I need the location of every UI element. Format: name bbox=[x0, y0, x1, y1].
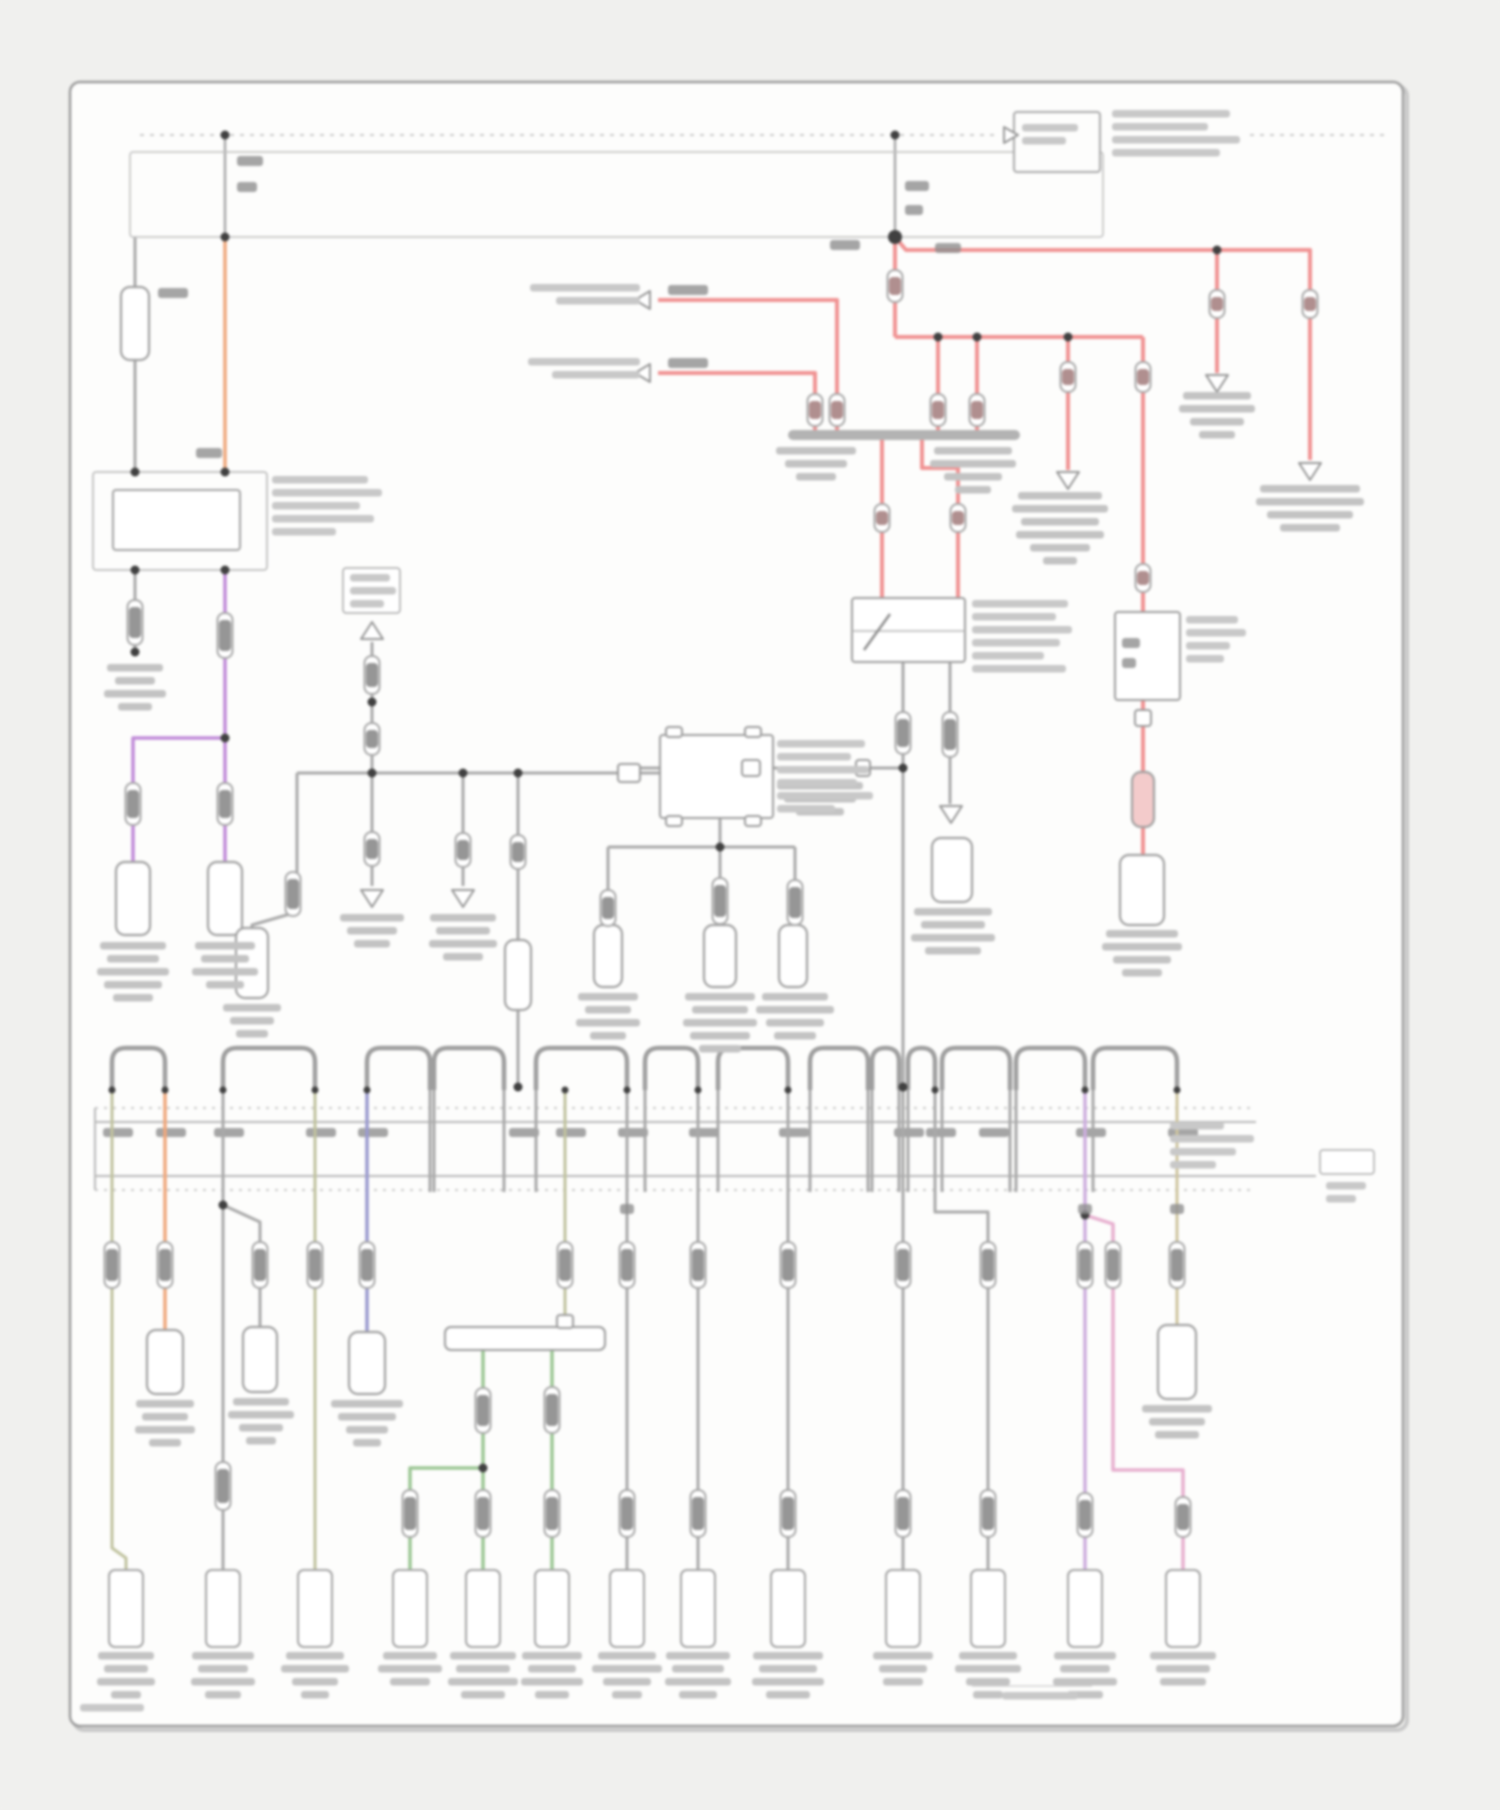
junction-dot bbox=[479, 1464, 488, 1473]
fuse-label-smudge bbox=[1079, 1500, 1091, 1530]
ground-label-line bbox=[340, 914, 404, 922]
ground-label-line bbox=[1267, 511, 1353, 519]
band-fuse-label-smudge bbox=[103, 1128, 133, 1137]
fuse-label-smudge bbox=[219, 790, 231, 818]
fuse-label-smudge bbox=[1211, 297, 1223, 311]
bottom-connector bbox=[1068, 1570, 1102, 1647]
band-fuse-label-smudge bbox=[926, 1128, 956, 1137]
ground-label-line bbox=[429, 940, 497, 948]
label-text-line bbox=[1326, 1182, 1366, 1190]
label-text-line bbox=[272, 476, 368, 484]
ground-label-line bbox=[752, 1678, 824, 1686]
fuse-label-smudge bbox=[457, 840, 469, 860]
fuse-label-smudge bbox=[546, 1497, 558, 1530]
ground-label-line bbox=[353, 1439, 381, 1447]
junction-dot bbox=[888, 230, 902, 244]
label-text-line bbox=[972, 665, 1066, 673]
ground-label-line bbox=[443, 953, 483, 961]
label-text-line bbox=[1186, 629, 1246, 637]
band-fuse-label-smudge bbox=[556, 1128, 586, 1137]
ground-label-line bbox=[107, 664, 163, 672]
ground-label-line bbox=[1113, 956, 1171, 964]
ground-label-line bbox=[934, 447, 1012, 455]
fuse-label-smudge bbox=[219, 620, 231, 651]
label-text-line bbox=[350, 600, 384, 608]
label-text-line bbox=[528, 358, 640, 366]
ground-label-line bbox=[97, 1678, 155, 1686]
wire-id-smudge bbox=[935, 243, 961, 253]
band-fuse-label-smudge bbox=[1076, 1128, 1106, 1137]
ground-label-line bbox=[338, 1413, 396, 1421]
ground-label-line bbox=[796, 473, 836, 481]
band-fuse-label-smudge bbox=[306, 1128, 336, 1137]
ground-label-line bbox=[1280, 524, 1340, 532]
ground-label-line bbox=[142, 1413, 188, 1421]
connector-capsule bbox=[932, 838, 972, 902]
junction-dot bbox=[221, 566, 230, 575]
label-text-line bbox=[1112, 123, 1208, 131]
band-fuse-label-smudge bbox=[509, 1128, 539, 1137]
wire-id-smudge bbox=[905, 181, 929, 191]
ground-label-line bbox=[959, 1652, 1017, 1660]
label-text-line bbox=[1170, 1135, 1254, 1143]
ground-label-line bbox=[230, 1017, 274, 1025]
ground-label-line bbox=[430, 914, 496, 922]
ground-label-line bbox=[955, 1665, 1021, 1673]
component-box-right bbox=[1115, 612, 1180, 700]
band-fuse-label-smudge bbox=[779, 1128, 809, 1137]
ground-label-line bbox=[192, 1652, 254, 1660]
fuse-label-smudge bbox=[477, 1497, 489, 1530]
power-bus-bar bbox=[788, 430, 1020, 440]
junction-dot bbox=[221, 131, 230, 140]
ground-label-line bbox=[436, 927, 490, 935]
ground-label-line bbox=[354, 940, 390, 948]
ground-label-line bbox=[1183, 392, 1251, 400]
ground-label-line bbox=[1016, 531, 1104, 539]
ground-label-line bbox=[198, 1665, 248, 1673]
ground-label-line bbox=[107, 955, 159, 963]
ground-label-line bbox=[118, 703, 152, 711]
label-text-line bbox=[777, 792, 873, 800]
label-text-line bbox=[1170, 1161, 1216, 1169]
fuse-label-smudge bbox=[559, 1249, 571, 1281]
ground-label-line bbox=[1199, 431, 1235, 439]
ground-label-line bbox=[111, 1691, 141, 1699]
label-text-line bbox=[1186, 655, 1224, 663]
ground-label-line bbox=[785, 460, 847, 468]
label-text-line bbox=[777, 779, 857, 787]
inline-connector bbox=[745, 727, 761, 737]
fuse-label-smudge bbox=[1171, 1249, 1183, 1281]
ground-label-line bbox=[766, 1019, 824, 1027]
ground-label-line bbox=[390, 1678, 430, 1686]
ground-label-line bbox=[966, 1678, 1010, 1686]
wire-id-smudge bbox=[1078, 1204, 1092, 1214]
connector-capsule bbox=[116, 862, 150, 935]
bottom-connector bbox=[1166, 1570, 1200, 1647]
ground-label-line bbox=[97, 968, 169, 976]
fuse-label-smudge bbox=[897, 719, 909, 747]
junction-dot bbox=[1213, 246, 1222, 255]
wire-id-smudge bbox=[196, 448, 222, 458]
junction-dot bbox=[131, 648, 140, 657]
ground-label-line bbox=[690, 1032, 750, 1040]
diagram-canvas bbox=[0, 0, 1500, 1810]
junction-dot bbox=[695, 1087, 702, 1094]
label-text-line bbox=[777, 805, 835, 813]
junction-dot bbox=[221, 468, 230, 477]
fuse-label-smudge bbox=[546, 1394, 558, 1426]
ground-label-line bbox=[598, 1652, 656, 1660]
label-text-line bbox=[777, 740, 865, 748]
ground-label-line bbox=[603, 1678, 651, 1686]
fuse-label-smudge bbox=[1137, 369, 1149, 385]
label-text-line bbox=[777, 766, 869, 774]
wire-id-smudge bbox=[158, 288, 188, 298]
inline-connector bbox=[1135, 710, 1151, 726]
junction-dot bbox=[891, 131, 900, 140]
ground-label-line bbox=[1053, 1678, 1117, 1686]
fuse-label-smudge bbox=[782, 1497, 794, 1530]
label-text-line bbox=[1326, 1195, 1356, 1203]
ground-label-line bbox=[672, 1665, 724, 1673]
power-distribution-wiring-diagram bbox=[0, 0, 1500, 1810]
ground-label-line bbox=[383, 1652, 437, 1660]
fuse-label-smudge bbox=[366, 730, 378, 748]
ground-label-line bbox=[448, 1678, 518, 1686]
ground-label-line bbox=[522, 1652, 582, 1660]
connector-capsule bbox=[349, 1332, 385, 1394]
fuse-label-smudge bbox=[952, 511, 964, 525]
page-border bbox=[70, 82, 1403, 1726]
fuse-label-smudge bbox=[982, 1497, 994, 1530]
junction-dot bbox=[162, 1087, 169, 1094]
fuse-label-smudge bbox=[692, 1497, 704, 1530]
module-box-left-inner bbox=[113, 490, 240, 550]
fuse-label-smudge bbox=[897, 1249, 909, 1281]
ground-label-line bbox=[585, 1006, 631, 1014]
ground-label-line bbox=[590, 1032, 626, 1040]
label-text-line bbox=[1186, 642, 1230, 650]
junction-dot bbox=[131, 566, 140, 575]
ground-label-line bbox=[1102, 943, 1182, 951]
ground-label-line bbox=[528, 1665, 576, 1673]
label-text-line bbox=[1170, 1148, 1236, 1156]
fuse-label-smudge bbox=[971, 401, 983, 419]
ground-label-line bbox=[873, 1652, 933, 1660]
ground-label-line bbox=[1260, 485, 1360, 493]
ground-label-line bbox=[104, 981, 162, 989]
ground-label-line bbox=[683, 1019, 757, 1027]
fuse-label-smudge bbox=[287, 879, 299, 909]
ground-label-line bbox=[228, 1411, 294, 1419]
label-text-line bbox=[272, 489, 382, 497]
ground-label-line bbox=[578, 993, 638, 1001]
ground-label-line bbox=[1021, 518, 1099, 526]
junction-dot bbox=[562, 1087, 569, 1094]
bottom-connector bbox=[393, 1570, 427, 1647]
label-text-line bbox=[972, 626, 1072, 634]
label-text-line bbox=[350, 587, 396, 595]
junction-dot bbox=[219, 1201, 228, 1210]
ground-label-line bbox=[104, 690, 166, 698]
label-text-line bbox=[972, 652, 1044, 660]
inline-connector bbox=[745, 816, 761, 826]
connector-capsule bbox=[208, 862, 242, 935]
wire-id-smudge bbox=[668, 285, 708, 295]
bottom-connector bbox=[681, 1570, 715, 1647]
junction-dot bbox=[624, 1087, 631, 1094]
ground-label-line bbox=[450, 1652, 516, 1660]
ground-label-line bbox=[331, 1400, 403, 1408]
ground-label-line bbox=[766, 1691, 810, 1699]
ground-label-line bbox=[1060, 1665, 1110, 1673]
band-fuse-label-smudge bbox=[979, 1128, 1009, 1137]
ground-label-line bbox=[1054, 1652, 1116, 1660]
label-text-line bbox=[272, 528, 336, 536]
ground-label-line bbox=[378, 1665, 442, 1673]
label-text-line bbox=[1002, 1692, 1078, 1700]
inline-connector bbox=[557, 1315, 573, 1328]
bottom-connector bbox=[206, 1570, 240, 1647]
junction-dot bbox=[312, 1087, 319, 1094]
ground-label-line bbox=[192, 968, 258, 976]
fuse-label-smudge bbox=[366, 839, 378, 859]
fuse-label-smudge bbox=[1079, 1249, 1091, 1281]
fuse-label-smudge bbox=[512, 842, 524, 862]
ground-label-line bbox=[911, 934, 995, 942]
label-text-line bbox=[1112, 149, 1220, 157]
ground-label-line bbox=[136, 1400, 194, 1408]
junction-dot bbox=[785, 1087, 792, 1094]
ground-label-line bbox=[692, 1006, 748, 1014]
fuse-label-smudge bbox=[129, 607, 141, 638]
ground-label-line bbox=[576, 1019, 640, 1027]
connector-capsule bbox=[1158, 1325, 1196, 1399]
ground-label-line bbox=[699, 1045, 741, 1053]
ground-label-line bbox=[239, 1424, 283, 1432]
fuse-label-smudge bbox=[254, 1249, 266, 1281]
ground-label-line bbox=[762, 993, 828, 1001]
ground-label-line bbox=[756, 1006, 834, 1014]
fuse-label-smudge bbox=[897, 1497, 909, 1530]
fuse-label-smudge bbox=[404, 1497, 416, 1530]
fuse-label-smudge bbox=[932, 401, 944, 419]
junction-dot bbox=[221, 734, 230, 743]
ground-label-line bbox=[195, 942, 255, 950]
label-text-line bbox=[1186, 616, 1238, 624]
ground-label-line bbox=[1150, 1652, 1216, 1660]
ground-label-line bbox=[115, 677, 155, 685]
fuse-label-smudge bbox=[692, 1249, 704, 1281]
ground-label-line bbox=[914, 908, 992, 916]
bottom-connector bbox=[971, 1570, 1005, 1647]
label-text-line bbox=[777, 753, 851, 761]
junction-dot bbox=[899, 1083, 908, 1092]
inline-connector bbox=[742, 760, 760, 776]
fuse-label-smudge bbox=[361, 1249, 373, 1281]
label-text-line bbox=[972, 613, 1056, 621]
band-fuse-label-smudge bbox=[894, 1128, 924, 1137]
ground-label-line bbox=[1256, 498, 1364, 506]
wire-id-smudge bbox=[1122, 638, 1140, 648]
junction-dot bbox=[109, 1087, 116, 1094]
ground-label-line bbox=[1122, 969, 1162, 977]
junction-dot bbox=[716, 843, 725, 852]
ground-label-line bbox=[246, 1437, 276, 1445]
ground-label-line bbox=[286, 1652, 344, 1660]
ground-label-line bbox=[521, 1678, 583, 1686]
junction-dot bbox=[1064, 333, 1073, 342]
ground-label-line bbox=[191, 1678, 255, 1686]
junction-dot bbox=[1174, 1087, 1181, 1094]
ground-label-line bbox=[135, 1426, 195, 1434]
wire-id-smudge bbox=[1170, 1204, 1184, 1214]
bottom-connector bbox=[109, 1570, 143, 1647]
bottom-connector bbox=[298, 1570, 332, 1647]
fuse-label-smudge bbox=[159, 1249, 171, 1281]
bottom-connector bbox=[610, 1570, 644, 1647]
band-end-label-box bbox=[1320, 1150, 1374, 1174]
junction-dot bbox=[973, 333, 982, 342]
band-fuse-label-smudge bbox=[156, 1128, 186, 1137]
bottom-connector bbox=[466, 1570, 500, 1647]
junction-dot bbox=[368, 698, 377, 707]
ground-label-line bbox=[1106, 930, 1178, 938]
inline-connector bbox=[618, 764, 640, 782]
junction-dot bbox=[934, 333, 943, 342]
connector-capsule bbox=[594, 925, 622, 987]
label-text-line bbox=[1112, 136, 1240, 144]
label-text-line bbox=[1170, 1122, 1224, 1130]
fuse-label-smudge bbox=[621, 1249, 633, 1281]
ground-label-line bbox=[205, 1691, 241, 1699]
junction-dot bbox=[932, 1087, 939, 1094]
ground-label-line bbox=[456, 1665, 510, 1673]
fuse-label-smudge bbox=[366, 663, 378, 687]
wire-id-smudge bbox=[1122, 658, 1136, 668]
connector-capsule bbox=[1132, 772, 1154, 827]
label-text-line bbox=[972, 600, 1068, 608]
junction-dot bbox=[364, 1087, 371, 1094]
ground-label-line bbox=[944, 473, 1002, 481]
ground-label-line bbox=[955, 486, 991, 494]
fuse-label-smudge bbox=[1304, 297, 1316, 311]
ground-label-line bbox=[149, 1439, 181, 1447]
fuse-label-smudge bbox=[309, 1249, 321, 1281]
label-text-line bbox=[272, 502, 360, 510]
inline-connector bbox=[666, 727, 682, 737]
ground-label-line bbox=[973, 1691, 1003, 1699]
ground-label-line bbox=[1043, 557, 1077, 565]
label-text-line bbox=[1022, 137, 1066, 145]
junction-dot bbox=[368, 769, 377, 778]
ground-label-line bbox=[925, 947, 981, 955]
junction-dot bbox=[131, 468, 140, 477]
ground-label-line bbox=[461, 1691, 505, 1699]
ground-label-line bbox=[1018, 492, 1102, 500]
ground-label-line bbox=[679, 1691, 717, 1699]
junction-dot bbox=[514, 1083, 523, 1092]
ground-label-line bbox=[347, 927, 397, 935]
label-text-line bbox=[1112, 110, 1230, 118]
ground-label-line bbox=[1030, 544, 1090, 552]
ground-label-line bbox=[666, 1652, 730, 1660]
fuse-label-smudge bbox=[1062, 369, 1074, 385]
ground-label-line bbox=[1142, 1405, 1212, 1413]
ground-label-line bbox=[100, 942, 166, 950]
connector-capsule bbox=[704, 925, 736, 987]
junction-dot bbox=[459, 769, 468, 778]
bottom-connector bbox=[535, 1570, 569, 1647]
ground-label-line bbox=[346, 1426, 388, 1434]
band-fuse-label-smudge bbox=[618, 1128, 648, 1137]
ground-label-line bbox=[292, 1678, 338, 1686]
wire-id-smudge bbox=[237, 182, 257, 192]
ground-label-line bbox=[753, 1652, 823, 1660]
ground-label-line bbox=[1190, 418, 1244, 426]
connector-capsule bbox=[505, 940, 531, 1010]
ground-label-line bbox=[1160, 1678, 1206, 1686]
ground-label-line bbox=[1156, 1665, 1210, 1673]
ground-label-line bbox=[612, 1691, 642, 1699]
band-fuse-label-smudge bbox=[214, 1128, 244, 1137]
bottom-connector bbox=[886, 1570, 920, 1647]
fuse-label-smudge bbox=[982, 1249, 994, 1281]
ground-label-line bbox=[921, 921, 985, 929]
relay-box bbox=[852, 598, 965, 662]
band-fuse-label-smudge bbox=[689, 1128, 719, 1137]
connector-capsule bbox=[243, 1327, 277, 1392]
ground-label-line bbox=[1149, 1418, 1205, 1426]
ground-label-line bbox=[1179, 405, 1255, 413]
label-text-line bbox=[350, 574, 390, 582]
fuse-label-smudge bbox=[217, 1469, 229, 1503]
ground-label-line bbox=[113, 994, 153, 1002]
ground-label-line bbox=[883, 1678, 923, 1686]
ground-label-line bbox=[201, 955, 249, 963]
ground-label-line bbox=[233, 1398, 289, 1406]
ground-label-line bbox=[236, 1030, 268, 1038]
connector-capsule bbox=[147, 1330, 183, 1394]
ground-label-line bbox=[1155, 1431, 1199, 1439]
junction-dot bbox=[221, 233, 230, 242]
ground-label-line bbox=[879, 1665, 927, 1673]
ground-label-line bbox=[535, 1691, 569, 1699]
ground-label-line bbox=[592, 1665, 662, 1673]
label-text-line bbox=[972, 639, 1060, 647]
label-text-line bbox=[272, 515, 374, 523]
fuse-label-smudge bbox=[1137, 571, 1149, 585]
label-text-line bbox=[556, 297, 640, 305]
label-text-line bbox=[80, 1704, 144, 1712]
inline-connector bbox=[666, 816, 682, 826]
ground-label-line bbox=[104, 1665, 148, 1673]
wire-id-smudge bbox=[830, 240, 860, 250]
ground-label-line bbox=[774, 1032, 816, 1040]
fuse-label-smudge bbox=[106, 1249, 118, 1281]
fuse-label-smudge bbox=[782, 1249, 794, 1281]
wire-id-smudge bbox=[668, 358, 708, 368]
ground-label-line bbox=[206, 981, 244, 989]
label-text-line bbox=[552, 371, 640, 379]
bottom-connector bbox=[771, 1570, 805, 1647]
ground-label-line bbox=[1012, 505, 1108, 513]
label-text-line bbox=[1022, 124, 1078, 132]
fuse-label-smudge bbox=[831, 401, 843, 419]
connector-capsule bbox=[1120, 855, 1164, 925]
